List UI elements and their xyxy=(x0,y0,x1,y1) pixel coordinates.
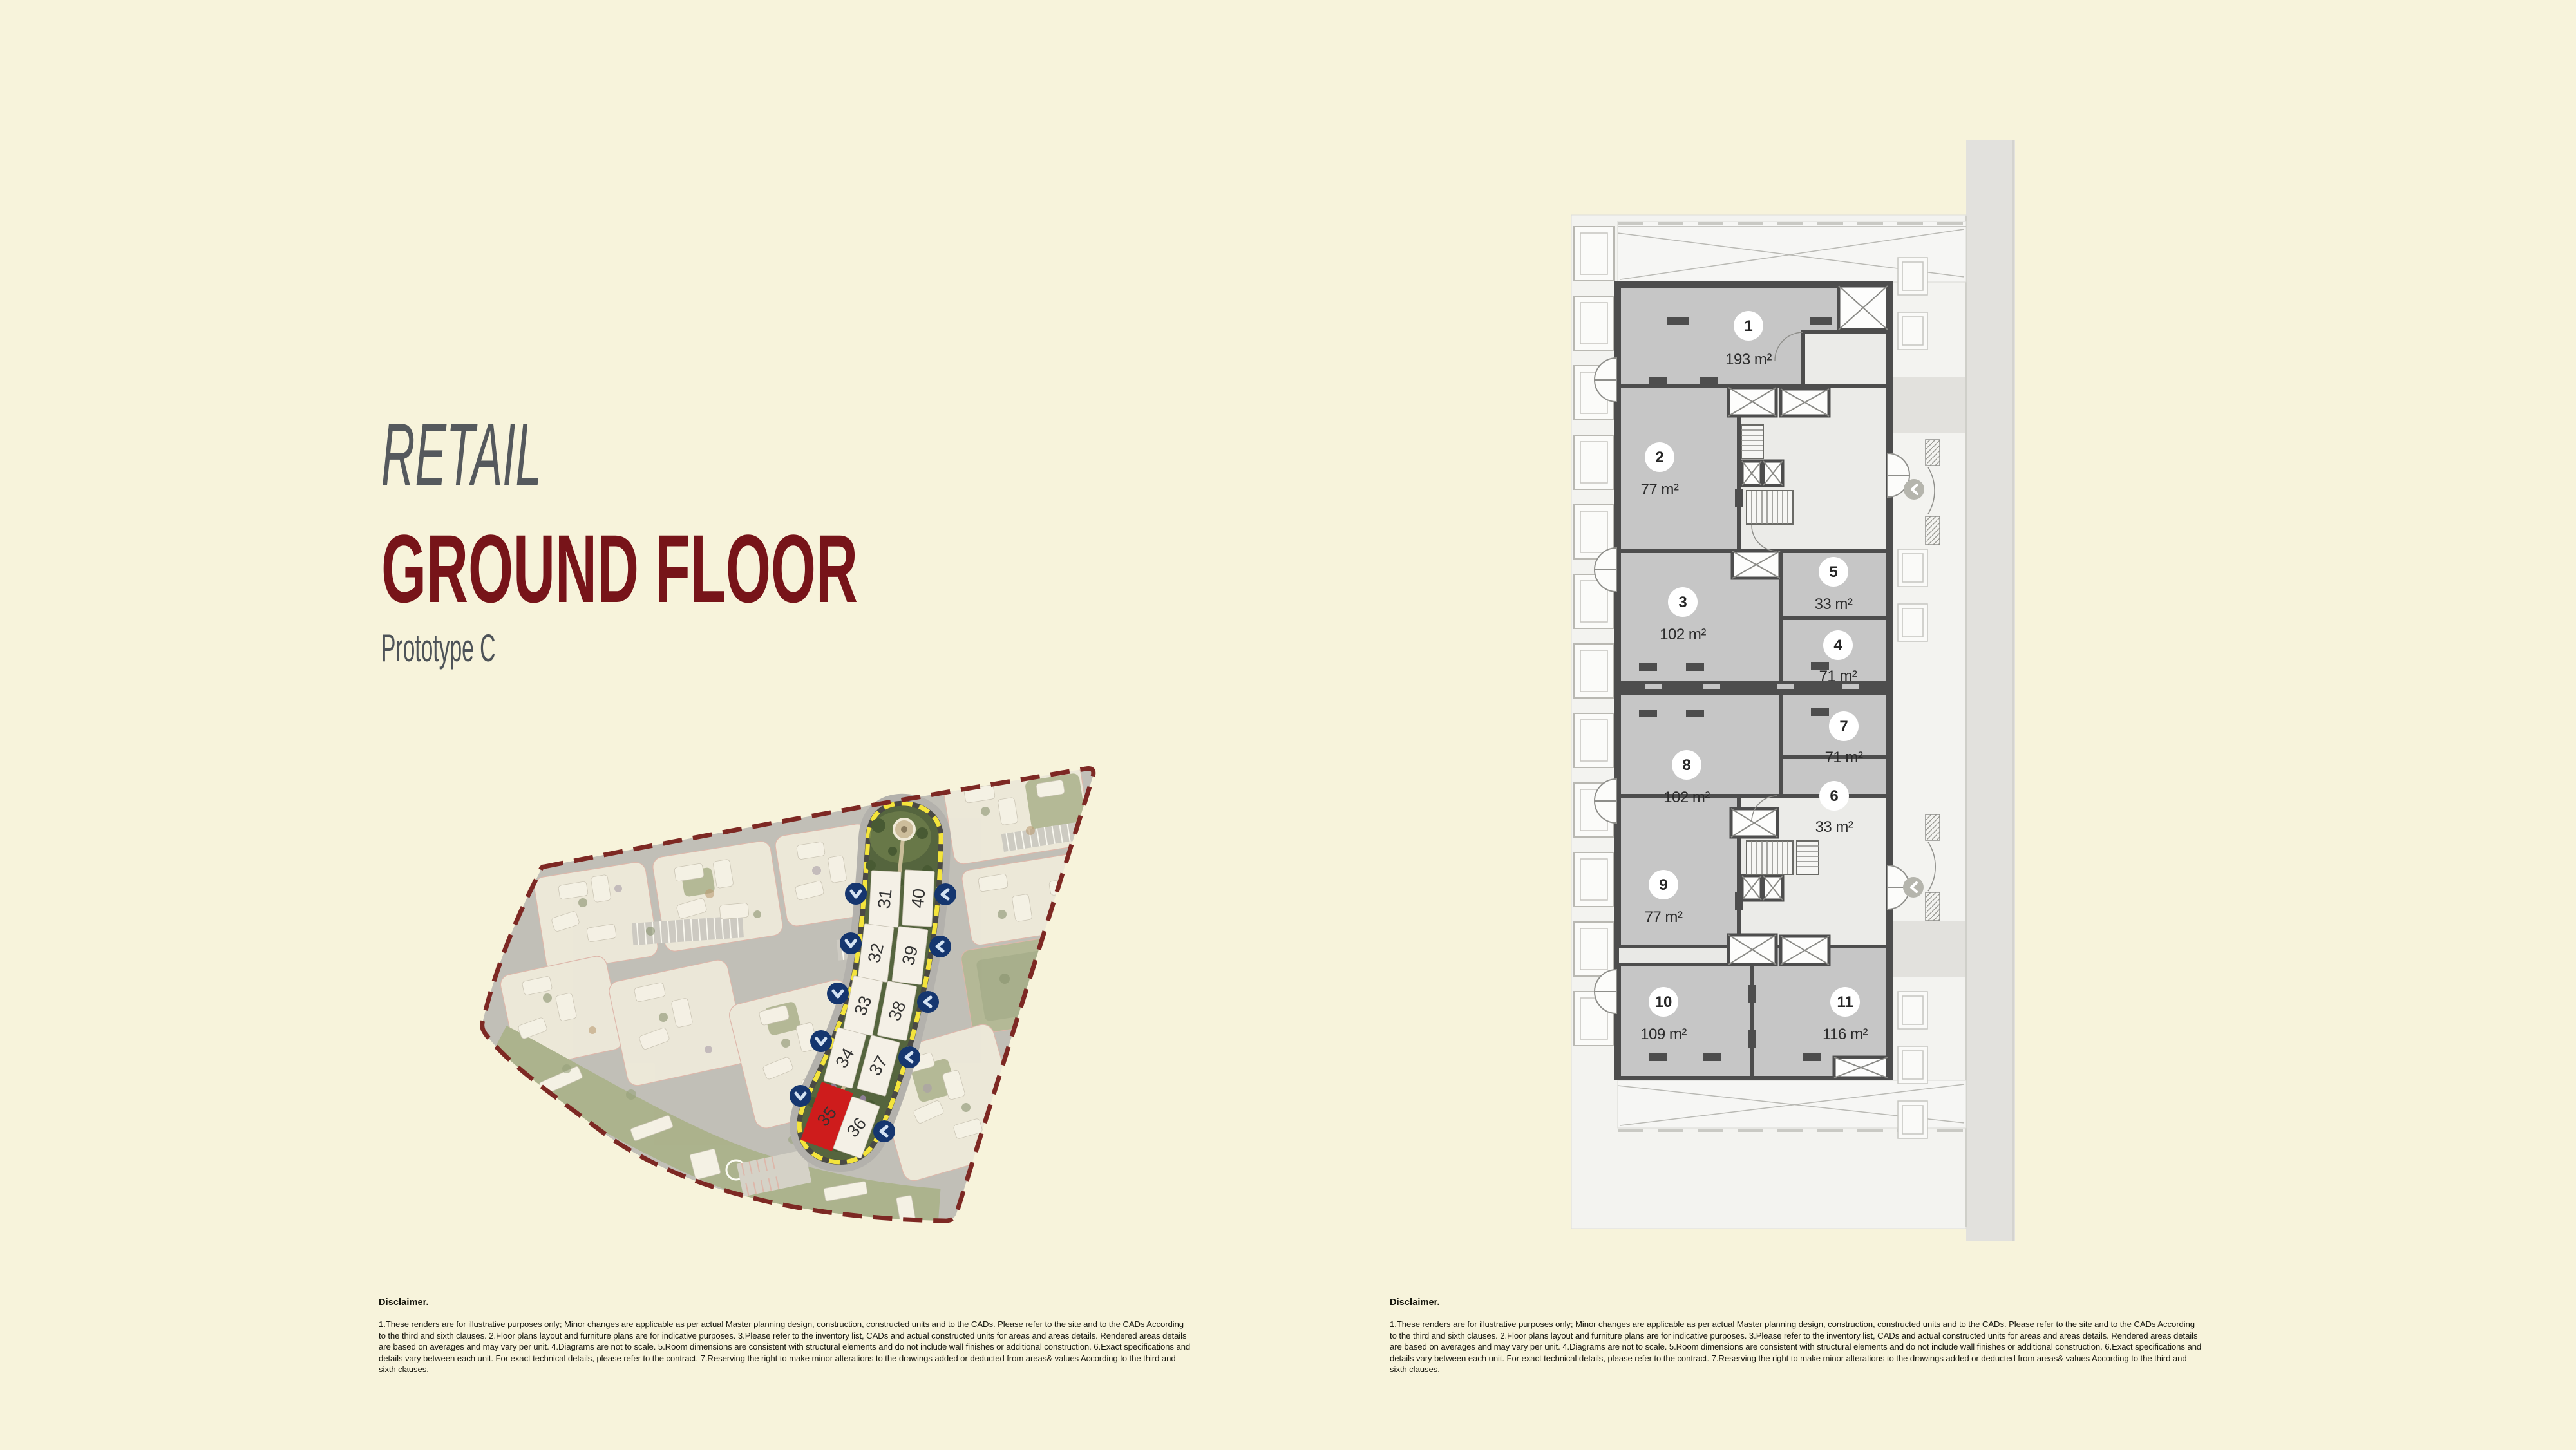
road-strip xyxy=(1966,140,2015,1241)
staircase xyxy=(1747,841,1793,874)
svg-text:33 m²: 33 m² xyxy=(1815,596,1853,613)
shaft xyxy=(1731,809,1777,837)
title-block: RETAIL GROUND FLOOR xyxy=(381,406,1283,622)
svg-text:10: 10 xyxy=(1655,993,1672,1011)
chevron-left-icon xyxy=(929,936,951,957)
svg-text:3: 3 xyxy=(1678,594,1687,611)
disclaimer-body: 1.These renders are for illustrative pur… xyxy=(379,1319,1191,1375)
shaft xyxy=(1781,389,1829,416)
elevator xyxy=(1742,876,1761,900)
floor-plan: 1193 m² 277 m² 3102 m² 533 m² 471 m² 771… xyxy=(1539,138,2029,1243)
svg-text:6: 6 xyxy=(1830,787,1838,805)
svg-text:40: 40 xyxy=(908,887,929,909)
svg-text:77 m²: 77 m² xyxy=(1641,481,1679,498)
disclaimer-right: Disclaimer. 1.These renders are for illu… xyxy=(1390,1297,2202,1375)
unit-10 xyxy=(1619,965,1752,1078)
shaft xyxy=(1839,286,1888,330)
shaft xyxy=(1834,1057,1888,1078)
svg-text:109 m²: 109 m² xyxy=(1640,1026,1687,1043)
svg-text:102 m²: 102 m² xyxy=(1663,789,1710,806)
svg-text:31: 31 xyxy=(875,888,896,909)
chevron-left-icon xyxy=(1903,877,1924,898)
category-title: RETAIL xyxy=(381,406,859,504)
svg-text:116 m²: 116 m² xyxy=(1823,1026,1868,1043)
staircase xyxy=(1741,425,1763,458)
disclaimer-body: 1.These renders are for illustrative pur… xyxy=(1390,1319,2202,1375)
svg-text:2: 2 xyxy=(1655,449,1663,466)
unit-2 xyxy=(1619,386,1739,551)
svg-text:102 m²: 102 m² xyxy=(1660,626,1706,643)
site-map: 31 40 32 39 33 38 34 37 35 36 xyxy=(451,744,1133,1259)
svg-text:4: 4 xyxy=(1833,637,1842,654)
svg-text:193 m²: 193 m² xyxy=(1725,351,1772,368)
svg-text:1: 1 xyxy=(1744,317,1752,335)
shaft xyxy=(1781,936,1829,965)
drive-bottom xyxy=(1890,921,1966,977)
chevron-left-icon xyxy=(934,883,956,905)
svg-text:5: 5 xyxy=(1829,563,1837,581)
vestibule-top xyxy=(1803,332,1888,386)
chevron-down-icon xyxy=(790,1085,811,1107)
chevron-down-icon xyxy=(827,983,849,1004)
chevron-left-icon xyxy=(873,1120,895,1142)
elevator xyxy=(1763,461,1783,485)
drive-top xyxy=(1890,377,1966,433)
svg-text:9: 9 xyxy=(1659,876,1667,894)
svg-text:7: 7 xyxy=(1839,718,1848,735)
shaft xyxy=(1728,935,1776,965)
disclaimer-heading: Disclaimer. xyxy=(379,1297,1191,1308)
staircase xyxy=(1747,491,1793,524)
elevator xyxy=(1763,876,1783,900)
disclaimer-left: Disclaimer. 1.These renders are for illu… xyxy=(379,1297,1191,1375)
staircase xyxy=(1797,841,1819,874)
svg-text:11: 11 xyxy=(1837,993,1853,1011)
svg-text:71 m²: 71 m² xyxy=(1819,668,1857,685)
page-title: GROUND FLOOR xyxy=(381,516,922,622)
disclaimer-heading: Disclaimer. xyxy=(1390,1297,2202,1308)
chevron-left-icon xyxy=(898,1046,920,1068)
shaft xyxy=(1728,388,1776,416)
chevron-left-icon xyxy=(917,991,939,1013)
svg-text:77 m²: 77 m² xyxy=(1645,909,1683,926)
svg-text:71 m²: 71 m² xyxy=(1825,749,1863,766)
chevron-left-icon xyxy=(1904,479,1924,500)
shaft xyxy=(1732,551,1780,578)
svg-text:8: 8 xyxy=(1682,757,1690,774)
chevron-down-icon xyxy=(845,883,867,905)
svg-text:33 m²: 33 m² xyxy=(1815,818,1853,836)
chevron-down-icon xyxy=(810,1030,832,1052)
prototype-subtitle: Prototype C xyxy=(381,626,495,670)
chevron-down-icon xyxy=(840,932,862,954)
elevator xyxy=(1742,461,1761,485)
